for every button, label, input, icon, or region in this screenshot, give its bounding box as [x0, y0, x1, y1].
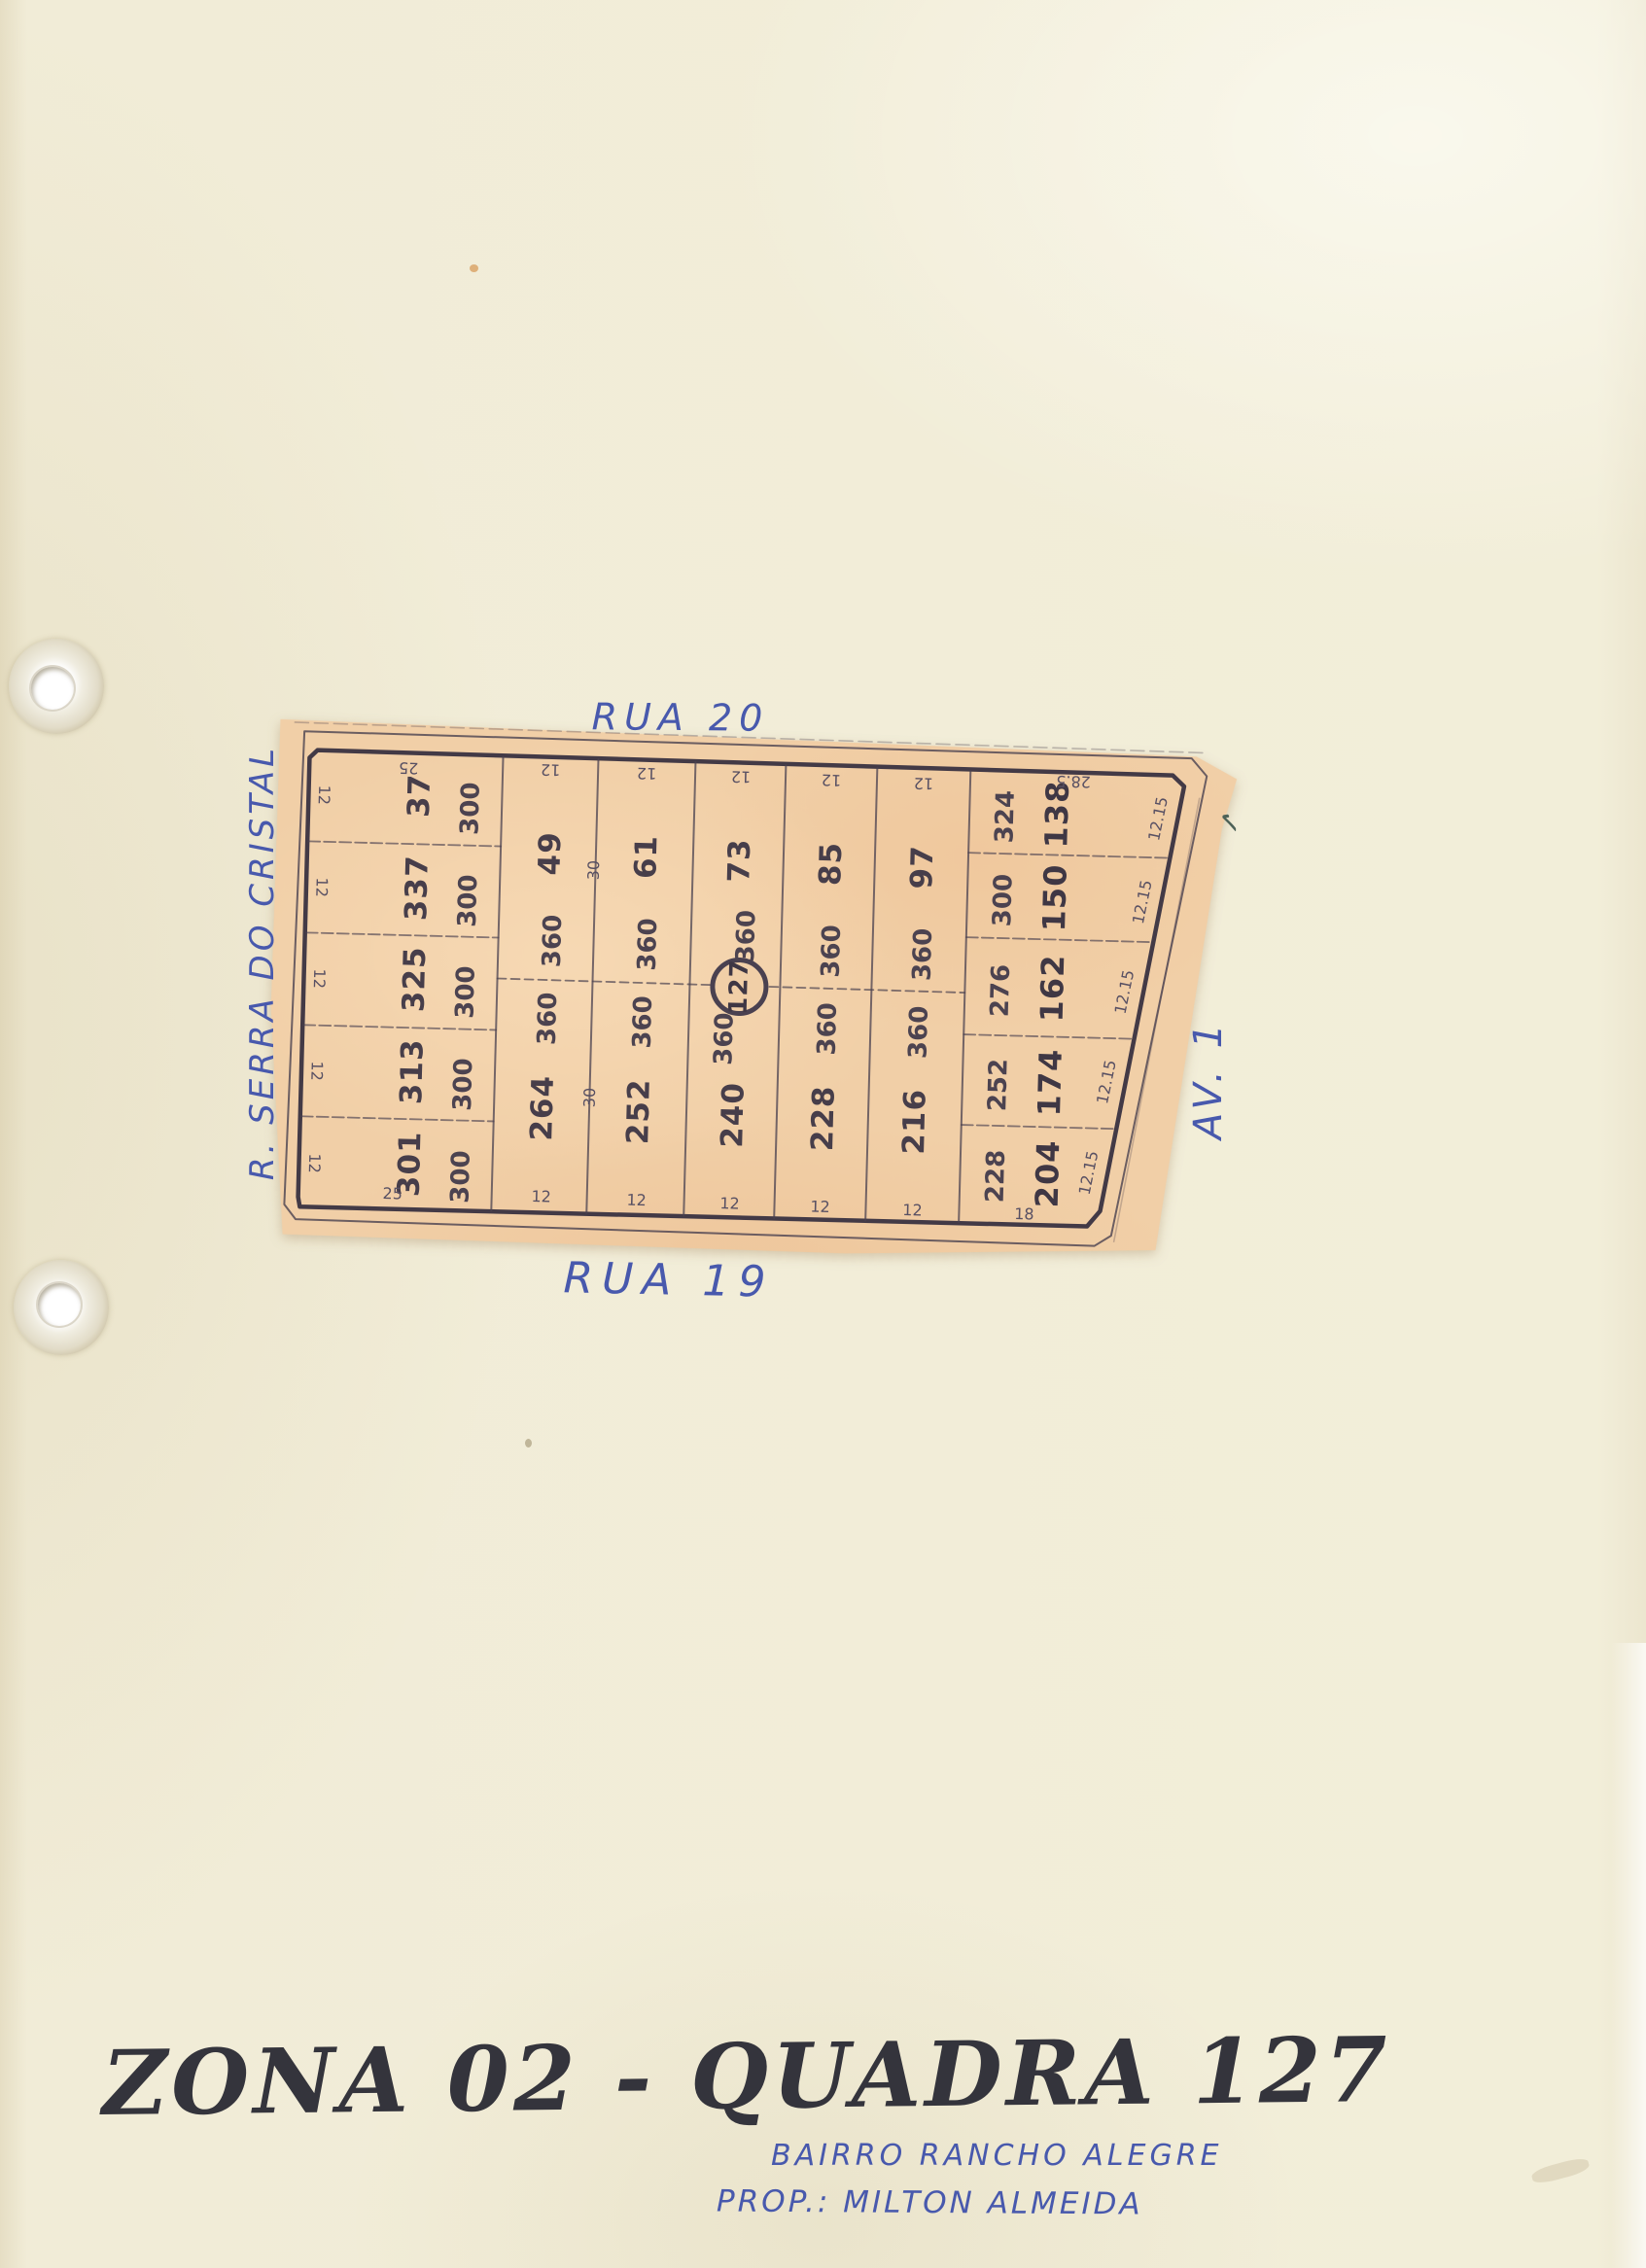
lot-number: 162 [1033, 954, 1072, 1023]
dim-label: 12 [312, 877, 332, 897]
block-number: 127 [724, 959, 754, 1015]
lot-area: 300 [455, 782, 485, 835]
lot-area: 360 [709, 1012, 739, 1065]
hole-punch-eyelet-bottom [14, 1260, 109, 1355]
dim-label: 12 [810, 1198, 830, 1217]
dim-label: 12 [822, 771, 842, 790]
page-title: ZONA 02 - QUADRA 127 [101, 2017, 1391, 2136]
lot-area: 360 [628, 995, 658, 1049]
lot-area: 252 [983, 1059, 1013, 1112]
lot-area: 300 [988, 874, 1018, 927]
dim-label: 18 [1014, 1204, 1034, 1224]
dim-label: 25 [382, 1184, 403, 1204]
street-label-serra-do-cristal: R. SERRA DO CRISTAL [243, 745, 282, 1180]
paper-smudge [1530, 2156, 1591, 2186]
street-label-rua-19: RUA 19 [563, 1253, 775, 1308]
lot-number: 97 [904, 845, 940, 890]
lot-area: 300 [445, 1150, 475, 1204]
dim-label: 12 [626, 1191, 647, 1210]
lot-area: 300 [450, 965, 480, 1019]
hole-punch-eyelet-top [9, 639, 104, 734]
lot-number: 73 [721, 838, 757, 883]
dim-label: 12 [531, 1187, 551, 1206]
plat-map: 127 12 12 12 12 12 37 337 325 313 301 30… [261, 714, 1247, 1303]
lot-area: 300 [453, 874, 483, 927]
street-label-rua-20: RUA 20 [591, 695, 769, 740]
dim-label: 12 [914, 774, 934, 793]
lot-area: 360 [904, 1005, 934, 1059]
lot-area: 360 [538, 914, 568, 967]
paper-speck [525, 1439, 532, 1448]
hole-punch-hole [31, 667, 74, 710]
owner-label: PROP.: MILTON ALMEIDA [717, 2183, 1143, 2221]
scanned-page: { "colors": { "page_background": "#f2eed… [0, 0, 1646, 2268]
page-edge-highlight [1611, 1643, 1646, 2268]
neighborhood-label: BAIRRO RANCHO ALEGRE [771, 2139, 1223, 2173]
paper-speck [470, 264, 478, 272]
dim-label: 12 [307, 1061, 327, 1081]
lot-number: 37 [402, 773, 438, 818]
dim-label: 12 [731, 767, 752, 786]
lot-area: 360 [908, 927, 938, 981]
lot-number: 228 [805, 1085, 842, 1152]
dim-label: 12 [902, 1201, 923, 1220]
lot-number: 150 [1035, 863, 1074, 932]
dim-label: 28.5 [1056, 772, 1091, 791]
lot-number: 174 [1031, 1048, 1069, 1117]
lot-area: 360 [633, 918, 663, 971]
lot-number: 337 [399, 855, 436, 922]
dim-label: 12 [310, 968, 330, 989]
lot-number: 204 [1029, 1139, 1068, 1208]
dim-label: 25 [399, 758, 419, 778]
lot-number: 216 [896, 1088, 933, 1155]
lot-area: 360 [817, 925, 847, 978]
lot-number: 85 [813, 841, 849, 886]
dim-label: 12 [315, 785, 334, 805]
dim-label: 30 [580, 1088, 600, 1108]
street-label-av-1: AV. 1 [1186, 1019, 1231, 1139]
hole-punch-hole [38, 1283, 81, 1326]
lot-number: 61 [628, 834, 664, 879]
dim-label: 12 [305, 1153, 325, 1173]
lot-number: 240 [715, 1082, 752, 1149]
lot-number: 313 [394, 1038, 431, 1105]
dim-label: 12 [541, 760, 561, 780]
lot-area: 360 [813, 1002, 843, 1056]
dim-label: 30 [584, 860, 604, 881]
lot-area: 300 [448, 1058, 478, 1111]
lot-number: 325 [397, 946, 434, 1013]
lot-number: 49 [532, 831, 568, 876]
lot-number: 264 [524, 1074, 561, 1141]
lot-area: 228 [981, 1149, 1011, 1203]
lot-area: 324 [990, 790, 1020, 844]
lot-area: 360 [731, 910, 761, 963]
dim-label: 12 [637, 764, 657, 784]
lot-area: 276 [986, 964, 1016, 1018]
dim-label: 12 [719, 1194, 740, 1213]
lot-number: 252 [620, 1078, 657, 1145]
lot-area: 360 [533, 992, 563, 1045]
